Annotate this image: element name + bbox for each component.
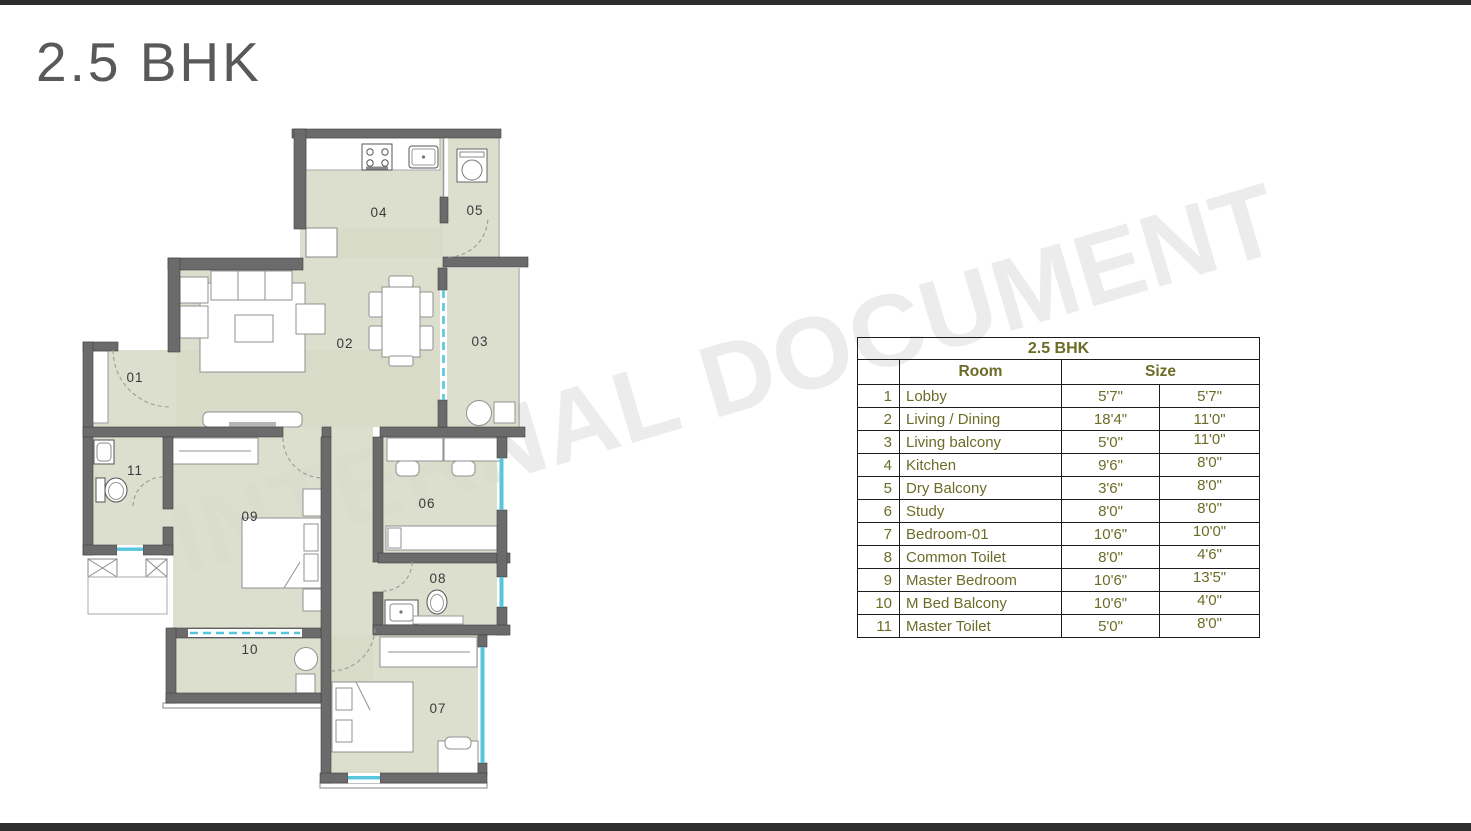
armchair <box>296 304 325 334</box>
row-room: Study <box>900 500 1062 523</box>
desk <box>444 438 500 461</box>
room-label-04: 04 <box>370 205 387 220</box>
col-header-size: Size <box>1062 360 1260 385</box>
table-title: 2.5 BHK <box>858 338 1260 360</box>
dining-chair <box>389 276 413 287</box>
table-row: 3 Living balcony 5'0" 11'0" <box>858 431 1260 454</box>
row-size-h: 8'0" <box>1160 615 1260 638</box>
row-room: Bedroom-01 <box>900 523 1062 546</box>
row-size-h: 8'0" <box>1160 454 1260 477</box>
table-row: 11 Master Toilet 5'0" 8'0" <box>858 615 1260 638</box>
room-label-07: 07 <box>429 701 446 716</box>
table-row: 9 Master Bedroom 10'6" 13'5" <box>858 569 1260 592</box>
armchair <box>180 277 208 303</box>
row-size-w: 5'0" <box>1062 615 1160 638</box>
table-row: 5 Dry Balcony 3'6" 8'0" <box>858 477 1260 500</box>
room-label-10: 10 <box>241 642 258 657</box>
row-no: 7 <box>858 523 900 546</box>
row-size-w: 9'6" <box>1062 454 1160 477</box>
row-size-h: 10'0" <box>1160 523 1260 546</box>
desk-chair <box>445 737 471 749</box>
row-no: 8 <box>858 546 900 569</box>
row-size-h: 8'0" <box>1160 477 1260 500</box>
row-size-w: 8'0" <box>1062 500 1160 523</box>
row-room: Living / Dining <box>900 408 1062 431</box>
row-size-w: 3'6" <box>1062 477 1160 500</box>
bottom-edge-bar <box>0 823 1471 831</box>
row-no: 10 <box>858 592 900 615</box>
desk <box>387 438 443 461</box>
pillow <box>336 720 352 742</box>
dining-chair <box>369 292 382 317</box>
side-table <box>303 589 322 611</box>
table-row: 2 Living / Dining 18'4" 11'0" <box>858 408 1260 431</box>
row-size-w: 18'4" <box>1062 408 1160 431</box>
daybed <box>386 526 497 550</box>
sofa-back <box>211 271 292 300</box>
row-room: Common Toilet <box>900 546 1062 569</box>
table-title-row: 2.5 BHK <box>858 338 1260 360</box>
row-no: 11 <box>858 615 900 638</box>
row-size-w: 10'6" <box>1062 569 1160 592</box>
balcony-table <box>295 648 318 671</box>
row-room: Master Toilet <box>900 615 1062 638</box>
row-size-h: 13'5" <box>1160 569 1260 592</box>
dining-table <box>382 287 420 357</box>
lobby-cabinet <box>92 351 108 423</box>
room-label-11: 11 <box>127 463 143 478</box>
room-label-03: 03 <box>471 334 488 349</box>
row-size-w: 5'7" <box>1062 385 1160 408</box>
row-size-w: 10'6" <box>1062 592 1160 615</box>
row-no: 4 <box>858 454 900 477</box>
page-title: 2.5 BHK <box>36 30 262 94</box>
pillow <box>304 554 318 581</box>
table-row: 6 Study 8'0" 8'0" <box>858 500 1260 523</box>
row-room: M Bed Balcony <box>900 592 1062 615</box>
table-row: 8 Common Toilet 8'0" 4'6" <box>858 546 1260 569</box>
table-row: 10 M Bed Balcony 10'6" 4'0" <box>858 592 1260 615</box>
room-label-05: 05 <box>466 203 483 218</box>
row-size-h: 4'0" <box>1160 592 1260 615</box>
dining-chair <box>420 292 433 317</box>
dining-chair <box>420 326 433 350</box>
room-label-06: 06 <box>418 496 435 511</box>
kitchen-duct <box>306 228 337 257</box>
room-size-table: 2.5 BHK Room Size 1 Lobby 5'7" 5'7" 2 Li… <box>857 337 1260 638</box>
toilet-tank <box>96 478 105 502</box>
balcony-chair <box>296 674 315 693</box>
row-size-w: 5'0" <box>1062 431 1160 454</box>
row-size-h: 4'6" <box>1160 546 1260 569</box>
pillow <box>336 688 352 710</box>
table-header-row: Room Size <box>858 360 1260 385</box>
table-row: 4 Kitchen 9'6" 8'0" <box>858 454 1260 477</box>
side-table <box>303 489 322 516</box>
desk-chair <box>396 461 419 476</box>
table-row: 7 Bedroom-01 10'6" 10'0" <box>858 523 1260 546</box>
row-size-h: 11'0" <box>1160 408 1260 431</box>
row-no: 5 <box>858 477 900 500</box>
room-label-09: 09 <box>241 509 258 524</box>
row-size-h: 5'7" <box>1160 385 1260 408</box>
row-size-w: 8'0" <box>1062 546 1160 569</box>
row-size-h: 11'0" <box>1160 431 1260 454</box>
dining-chair <box>369 326 382 350</box>
row-room: Living balcony <box>900 431 1062 454</box>
row-room: Dry Balcony <box>900 477 1062 500</box>
stove-icon <box>362 144 392 170</box>
duct-shafts <box>88 559 167 614</box>
row-room: Master Bedroom <box>900 569 1062 592</box>
row-room: Kitchen <box>900 454 1062 477</box>
row-size-w: 10'6" <box>1062 523 1160 546</box>
row-no: 1 <box>858 385 900 408</box>
col-header-room: Room <box>900 360 1062 385</box>
balcony-table <box>467 401 492 426</box>
row-room: Lobby <box>900 385 1062 408</box>
row-no: 3 <box>858 431 900 454</box>
row-no: 9 <box>858 569 900 592</box>
armchair <box>180 306 208 338</box>
toilet-tank <box>413 616 463 624</box>
coffee-table <box>235 315 273 342</box>
col-header-index <box>858 360 900 385</box>
pillow <box>304 524 318 551</box>
dining-chair <box>389 356 413 366</box>
room-label-02: 02 <box>336 336 353 351</box>
balcony-chair <box>494 402 515 423</box>
row-no: 6 <box>858 500 900 523</box>
room-label-08: 08 <box>429 571 446 586</box>
room-label-01: 01 <box>126 370 143 385</box>
row-size-h: 8'0" <box>1160 500 1260 523</box>
top-edge-bar <box>0 0 1471 5</box>
row-no: 2 <box>858 408 900 431</box>
table-row: 1 Lobby 5'7" 5'7" <box>858 385 1260 408</box>
desk-chair <box>452 461 475 476</box>
